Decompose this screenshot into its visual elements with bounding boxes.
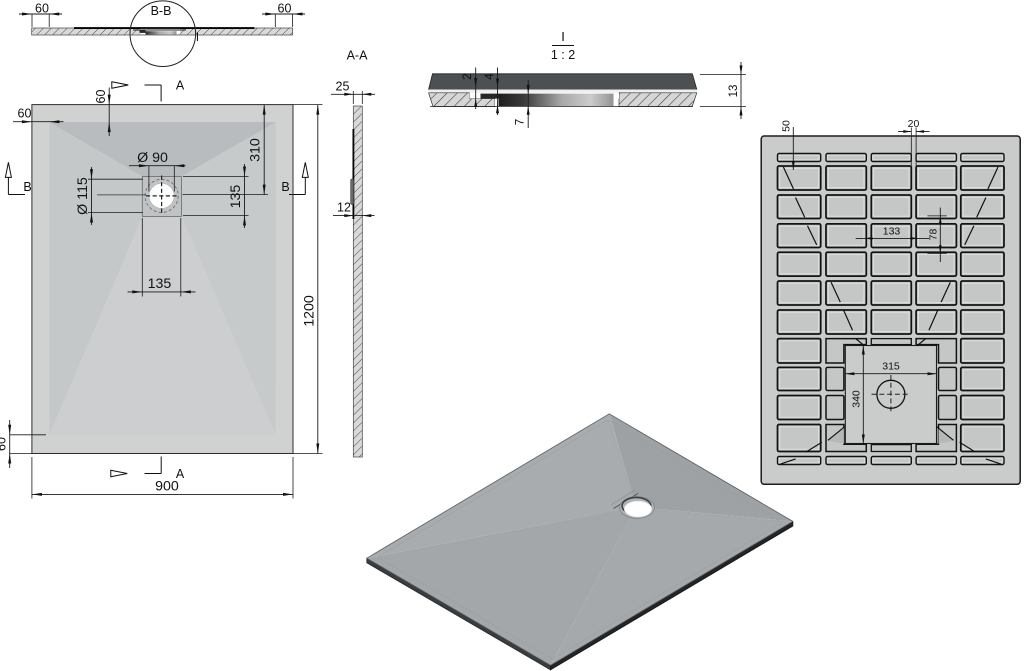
svg-text:1 : 2: 1 : 2: [551, 48, 575, 62]
svg-text:B: B: [281, 180, 289, 194]
svg-text:135: 135: [148, 276, 172, 292]
svg-text:340: 340: [850, 390, 862, 408]
svg-text:12: 12: [337, 201, 351, 215]
svg-text:A: A: [176, 467, 185, 481]
svg-text:1200: 1200: [302, 295, 318, 327]
svg-text:50: 50: [781, 120, 793, 132]
svg-text:A: A: [176, 79, 185, 93]
svg-text:60: 60: [94, 90, 108, 104]
svg-text:B: B: [23, 180, 31, 194]
svg-text:A-A: A-A: [347, 49, 369, 63]
svg-text:315: 315: [882, 361, 900, 373]
svg-text:Ø 115: Ø 115: [75, 177, 91, 215]
svg-text:B-B: B-B: [151, 4, 172, 18]
svg-text:7: 7: [515, 119, 527, 125]
svg-text:Ø 90: Ø 90: [137, 150, 168, 166]
svg-text:135: 135: [228, 185, 244, 209]
svg-text:13: 13: [728, 85, 740, 98]
svg-text:60: 60: [278, 2, 292, 16]
svg-text:2: 2: [462, 73, 474, 79]
svg-text:78: 78: [927, 229, 939, 241]
svg-text:60: 60: [0, 437, 9, 451]
svg-text:I: I: [196, 32, 199, 44]
svg-text:60: 60: [35, 2, 49, 16]
svg-text:4: 4: [484, 73, 496, 80]
svg-text:I: I: [561, 29, 565, 44]
svg-text:60: 60: [18, 107, 32, 121]
svg-text:20: 20: [908, 118, 920, 130]
svg-text:310: 310: [248, 138, 264, 162]
svg-text:25: 25: [336, 80, 350, 94]
svg-text:133: 133: [883, 226, 901, 238]
